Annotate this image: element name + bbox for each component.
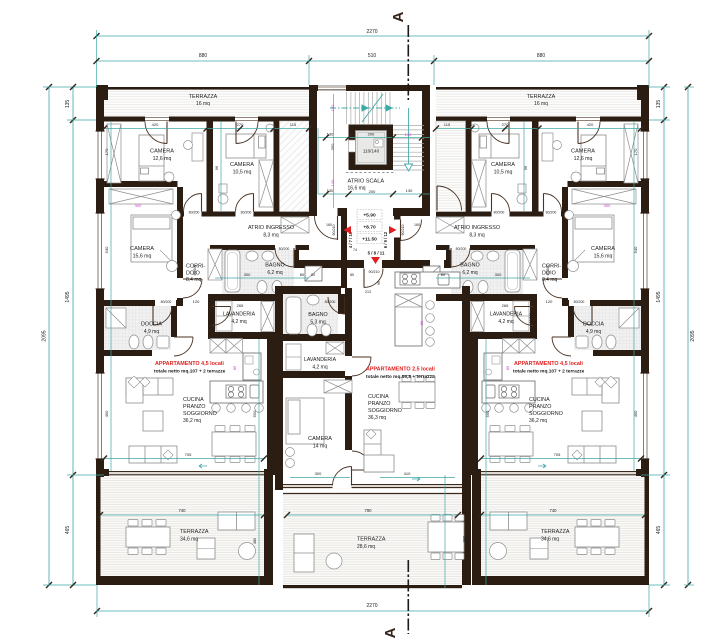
- svg-text:10,5 mq: 10,5 mq: [494, 170, 513, 176]
- svg-text:ATRIO INGRESSO: ATRIO INGRESSO: [248, 225, 294, 231]
- svg-text:APPARTAMENTO 4,5 locali: APPARTAMENTO 4,5 locali: [514, 361, 583, 367]
- svg-text:16 mq: 16 mq: [534, 101, 548, 107]
- svg-text:CORRI-: CORRI-: [542, 264, 561, 270]
- svg-text:36,2 mq: 36,2 mq: [529, 418, 547, 424]
- svg-text:CAMERA: CAMERA: [571, 149, 595, 155]
- svg-text:6,2 mq: 6,2 mq: [267, 270, 283, 276]
- svg-text:CORRI-: CORRI-: [186, 264, 205, 270]
- svg-text:80/200: 80/200: [494, 210, 505, 214]
- svg-text:BAGNO: BAGNO: [308, 312, 327, 318]
- svg-text:DOCCIA: DOCCIA: [583, 322, 604, 328]
- svg-text:135: 135: [65, 100, 71, 109]
- svg-text:540: 540: [633, 246, 638, 253]
- svg-text:5 / 8 / 11: 5 / 8 / 11: [368, 251, 385, 256]
- svg-text:4,2 mq: 4,2 mq: [231, 319, 247, 325]
- svg-text:265: 265: [237, 303, 244, 308]
- svg-text:4,2 mq: 4,2 mq: [498, 319, 514, 325]
- svg-text:490: 490: [633, 410, 638, 417]
- svg-text:CUCINA: CUCINA: [183, 397, 204, 403]
- svg-text:CAMERA: CAMERA: [308, 436, 332, 442]
- svg-text:120: 120: [546, 299, 553, 304]
- svg-text:550: 550: [252, 410, 257, 417]
- svg-text:CAMERA: CAMERA: [150, 149, 174, 155]
- svg-text:BAGNO: BAGNO: [265, 263, 284, 269]
- svg-text:2270: 2270: [366, 603, 377, 609]
- svg-text:89: 89: [505, 365, 510, 370]
- svg-text:TERRAZZA: TERRAZZA: [357, 537, 386, 543]
- svg-text:300: 300: [244, 272, 251, 277]
- svg-text:300: 300: [135, 203, 142, 208]
- svg-text:740: 740: [179, 508, 187, 513]
- svg-text:LAVANDERIA: LAVANDERIA: [304, 357, 337, 363]
- svg-text:80: 80: [311, 273, 315, 277]
- svg-text:15,6 mq: 15,6 mq: [594, 254, 613, 260]
- svg-text:880: 880: [537, 53, 546, 59]
- svg-text:130: 130: [327, 188, 334, 193]
- svg-text:80/200: 80/200: [161, 300, 172, 304]
- svg-text:880: 880: [199, 53, 208, 59]
- svg-text:90/210: 90/210: [401, 225, 405, 236]
- svg-text:510: 510: [368, 53, 377, 59]
- svg-text:465: 465: [65, 526, 71, 535]
- svg-text:1495: 1495: [65, 291, 71, 302]
- svg-text:totale netto mq.59,8 + terrazz: totale netto mq.59,8 + terrazza: [366, 374, 435, 380]
- svg-text:170: 170: [633, 148, 638, 155]
- svg-text:90/210: 90/210: [332, 225, 336, 236]
- svg-text:14 mq: 14 mq: [313, 444, 328, 450]
- svg-text:6,2 mq: 6,2 mq: [462, 270, 478, 276]
- svg-text:16,6 mq: 16,6 mq: [348, 186, 366, 192]
- svg-text:135: 135: [656, 100, 662, 109]
- svg-text:96: 96: [214, 165, 219, 170]
- svg-text:4,2 mq: 4,2 mq: [312, 365, 328, 371]
- svg-text:130: 130: [327, 132, 334, 137]
- svg-text:74: 74: [353, 248, 357, 252]
- svg-text:705: 705: [554, 452, 561, 457]
- svg-text:80: 80: [300, 272, 305, 277]
- svg-text:115: 115: [444, 122, 451, 127]
- svg-text:16 mq: 16 mq: [196, 101, 210, 107]
- svg-text:410: 410: [404, 471, 411, 476]
- svg-text:34,6 mq: 34,6 mq: [180, 537, 198, 543]
- svg-text:2270: 2270: [366, 29, 377, 35]
- svg-text:130: 130: [406, 188, 413, 193]
- svg-text:200: 200: [369, 189, 376, 194]
- svg-text:DOIO: DOIO: [542, 271, 556, 277]
- svg-text:265: 265: [502, 303, 509, 308]
- svg-text:LAVANDERIA: LAVANDERIA: [490, 312, 523, 318]
- svg-text:4,9 mq: 4,9 mq: [586, 329, 602, 335]
- svg-text:DOIO: DOIO: [186, 271, 200, 277]
- svg-text:CAMERA: CAMERA: [491, 162, 515, 168]
- svg-text:CAMERA: CAMERA: [230, 162, 254, 168]
- svg-text:SOGGIORNO: SOGGIORNO: [529, 411, 563, 417]
- svg-text:540: 540: [104, 246, 109, 253]
- svg-text:80/200: 80/200: [189, 210, 200, 214]
- svg-text:+8.70: +8.70: [363, 225, 376, 231]
- svg-text:85: 85: [350, 273, 354, 277]
- svg-text:PRANZO: PRANZO: [529, 404, 551, 410]
- svg-text:300: 300: [495, 272, 502, 277]
- svg-text:APPARTAMENTO 2,5 locali: APPARTAMENTO 2,5 locali: [366, 367, 435, 373]
- svg-text:TERRAZZA: TERRAZZA: [527, 94, 556, 100]
- svg-text:CUCINA: CUCINA: [368, 394, 389, 400]
- svg-text:80/200: 80/200: [210, 313, 214, 324]
- svg-text:130: 130: [405, 132, 412, 137]
- svg-text:2095: 2095: [42, 330, 48, 341]
- svg-text:A: A: [390, 11, 407, 22]
- svg-text:80/200: 80/200: [241, 210, 252, 214]
- svg-text:28,6 mq: 28,6 mq: [357, 544, 375, 550]
- svg-text:4,9 mq: 4,9 mq: [144, 329, 160, 335]
- svg-text:490: 490: [104, 410, 109, 417]
- svg-text:12,6 mq: 12,6 mq: [574, 156, 593, 162]
- svg-text:PRANZO: PRANZO: [368, 401, 390, 407]
- svg-text:90/210: 90/210: [369, 270, 380, 274]
- svg-text:+5.90: +5.90: [363, 213, 376, 219]
- svg-text:36,3 mq: 36,3 mq: [368, 415, 386, 421]
- svg-text:6 / 9 / 12: 6 / 9 / 12: [383, 231, 388, 248]
- svg-text:213: 213: [365, 290, 371, 294]
- svg-text:LAVANDERIA: LAVANDERIA: [223, 312, 256, 318]
- svg-text:80/200: 80/200: [546, 210, 557, 214]
- svg-text:CAMERA: CAMERA: [130, 246, 154, 252]
- svg-text:totale netto mq.107 + 2 terraz: totale netto mq.107 + 2 terrazze: [513, 369, 585, 375]
- svg-text:115: 115: [290, 122, 297, 127]
- svg-text:705: 705: [185, 452, 192, 457]
- svg-text:80: 80: [441, 272, 446, 277]
- svg-text:550: 550: [485, 410, 490, 417]
- svg-text:totale netto mq.107 + 2 terraz: totale netto mq.107 + 2 terrazze: [154, 369, 226, 375]
- svg-text:APPARTAMENTO 4,5 locali: APPARTAMENTO 4,5 locali: [155, 361, 224, 367]
- svg-text:740: 740: [550, 508, 558, 513]
- svg-text:BAGNO: BAGNO: [460, 263, 479, 269]
- svg-text:DOCCIA: DOCCIA: [141, 322, 162, 328]
- svg-text:8,4 mq: 8,4 mq: [542, 277, 558, 283]
- svg-text:300: 300: [315, 471, 322, 476]
- svg-text:TERRAZZA: TERRAZZA: [189, 94, 218, 100]
- svg-text:36,2 mq: 36,2 mq: [183, 418, 201, 424]
- svg-text:12,6 mq: 12,6 mq: [153, 156, 172, 162]
- svg-text:SOGGIORNO: SOGGIORNO: [183, 411, 217, 417]
- svg-text:96: 96: [523, 165, 528, 170]
- svg-text:CAMERA: CAMERA: [591, 246, 615, 252]
- svg-text:80/200: 80/200: [279, 247, 290, 251]
- svg-text:130: 130: [330, 104, 335, 111]
- svg-text:120: 120: [193, 299, 200, 304]
- svg-text:89: 89: [232, 365, 237, 370]
- svg-text:5,3 mq: 5,3 mq: [310, 320, 326, 326]
- svg-text:270: 270: [237, 122, 244, 127]
- svg-text:69: 69: [419, 320, 424, 325]
- svg-text:420: 420: [152, 122, 159, 127]
- svg-text:CUCINA: CUCINA: [529, 397, 550, 403]
- svg-text:PRANZO: PRANZO: [183, 404, 205, 410]
- svg-text:SOGGIORNO: SOGGIORNO: [368, 408, 402, 414]
- svg-text:8,3 mq: 8,3 mq: [263, 233, 279, 239]
- svg-text:420: 420: [587, 122, 594, 127]
- svg-text:170: 170: [104, 148, 109, 155]
- svg-text:270: 270: [502, 122, 509, 127]
- svg-text:790: 790: [365, 508, 373, 513]
- svg-text:8,3 mq: 8,3 mq: [469, 233, 485, 239]
- svg-text:10,5 mq: 10,5 mq: [233, 170, 252, 176]
- svg-text:8,4 mq: 8,4 mq: [186, 277, 202, 283]
- svg-text:80/200: 80/200: [456, 247, 467, 251]
- svg-text:34,6 mq: 34,6 mq: [541, 537, 559, 543]
- svg-text:ATRIO INGRESSO: ATRIO INGRESSO: [454, 225, 500, 231]
- svg-text:160: 160: [414, 223, 420, 227]
- svg-text:390: 390: [462, 535, 467, 543]
- svg-text:2095: 2095: [690, 330, 696, 341]
- svg-text:+11.50: +11.50: [362, 237, 377, 243]
- svg-text:80/200: 80/200: [325, 300, 336, 304]
- svg-text:200: 200: [368, 132, 375, 137]
- svg-text:160: 160: [326, 223, 332, 227]
- svg-text:80/200: 80/200: [574, 300, 585, 304]
- svg-text:95: 95: [377, 281, 381, 285]
- svg-text:15,6 mq: 15,6 mq: [133, 254, 152, 260]
- svg-text:A: A: [382, 627, 399, 638]
- svg-text:ATRIO SCALA: ATRIO SCALA: [348, 179, 385, 185]
- svg-text:80/200: 80/200: [529, 313, 533, 324]
- svg-text:110/140: 110/140: [363, 149, 380, 154]
- svg-text:1495: 1495: [656, 291, 662, 302]
- svg-text:465: 465: [656, 526, 662, 535]
- svg-text:TERRAZZA: TERRAZZA: [180, 529, 209, 535]
- svg-text:140: 140: [330, 179, 335, 186]
- svg-text:350: 350: [330, 143, 335, 150]
- svg-text:380: 380: [253, 538, 257, 544]
- svg-text:TERRAZZA: TERRAZZA: [541, 529, 570, 535]
- svg-text:300: 300: [604, 203, 611, 208]
